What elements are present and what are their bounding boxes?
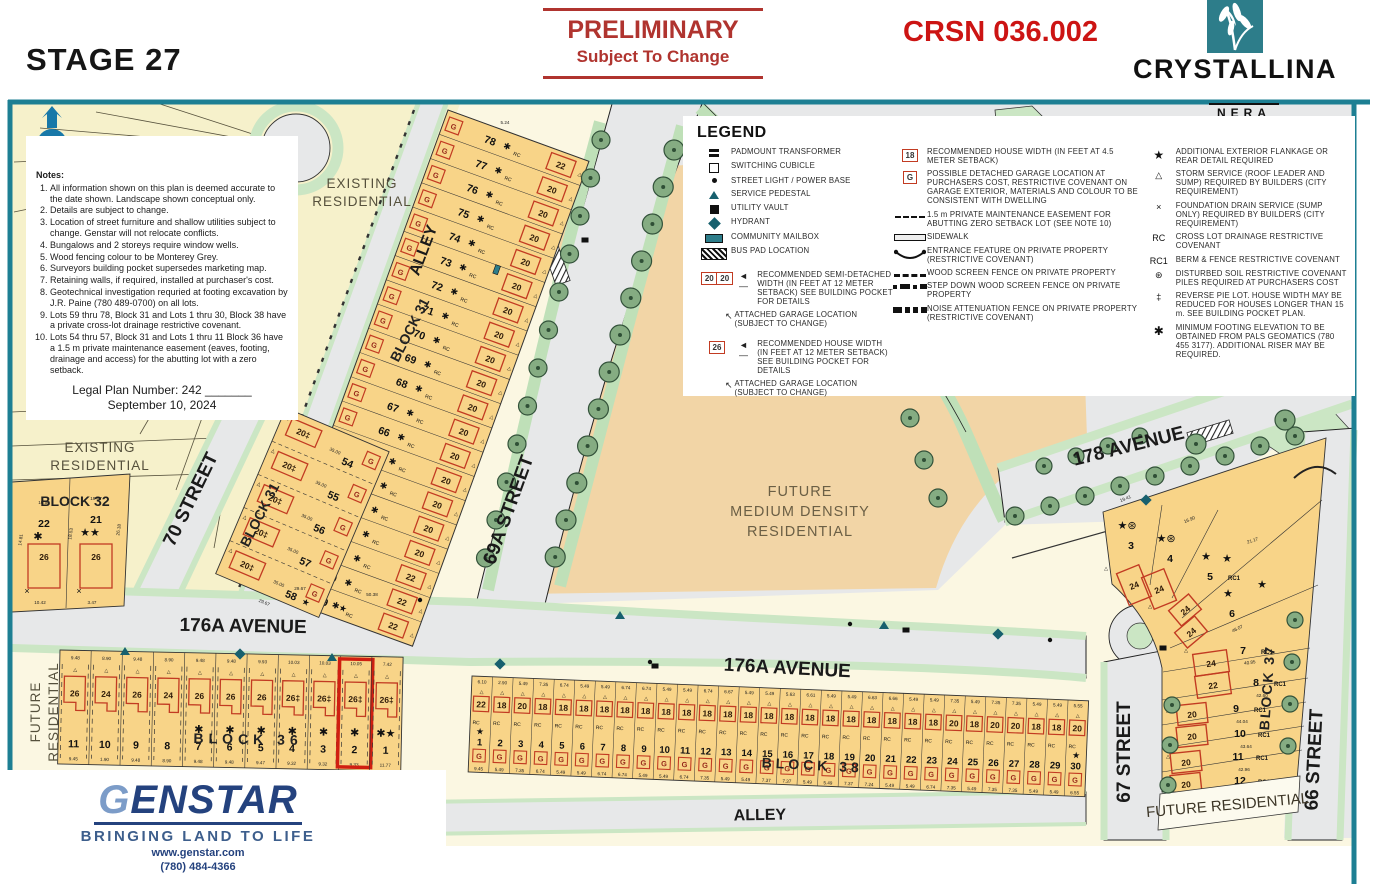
map-text: 5.24 — [501, 120, 510, 125]
legend-row: 18RECOMMENDED HOUSE WIDTH (IN FEET AT 4.… — [893, 148, 1142, 166]
map-text: 6.74 — [642, 686, 652, 691]
map-text: RC1 — [1258, 733, 1271, 739]
arrow-icon: ◄— — [739, 340, 755, 360]
map-text: 6.74 — [560, 683, 570, 688]
map-text: 20 — [949, 718, 959, 728]
map-text: RC — [596, 725, 604, 731]
map-text: 18 — [1052, 722, 1062, 732]
notes-heading: Notes: — [36, 170, 288, 181]
map-text: 20 — [865, 753, 876, 764]
map-text: 20 — [517, 701, 527, 711]
bus-pad-icon — [697, 247, 731, 260]
map-text: 5.49 — [1029, 788, 1039, 793]
map-text: G — [887, 768, 893, 777]
map-text: 24 — [101, 689, 111, 699]
map-text: △ — [623, 695, 627, 701]
map-text: 18 — [1031, 721, 1041, 731]
legend-row: RCCROSS LOT DRAINAGE RESTRICTIVE COVENAN… — [1142, 233, 1349, 251]
map-text: 3 — [1128, 540, 1134, 552]
transformer-icon — [903, 628, 910, 633]
map-text: 27 — [1008, 759, 1019, 770]
transformer-icon — [582, 238, 589, 243]
map-text: 6.55 — [1070, 790, 1080, 795]
map-text: 5.49 — [638, 773, 648, 778]
map-text: 5.63 — [786, 692, 796, 697]
map-text: 26 — [226, 691, 236, 701]
map-text: RC — [678, 728, 686, 734]
legend-title: LEGEND — [697, 124, 1349, 142]
map-text: △ — [229, 671, 233, 677]
map-text: 2 — [351, 744, 357, 756]
street-light-icon — [418, 598, 422, 602]
map-text: 6.74 — [926, 784, 936, 789]
map-text: 26‡ — [379, 695, 394, 705]
future-medium-label: MEDIUM DENSITY — [730, 504, 870, 520]
map-text: 44.04 — [1236, 719, 1248, 724]
map-text: ★★ — [80, 527, 100, 539]
disturbed-soil-icon: ⊛ — [1142, 270, 1176, 280]
map-text: △ — [665, 697, 669, 703]
map-text: △ — [292, 672, 296, 678]
map-text: 20 — [1011, 721, 1021, 731]
map-text: 4 — [1167, 553, 1173, 565]
map-text: 18 — [970, 719, 980, 729]
map-text: 18 — [661, 707, 671, 717]
map-text: 9.48 — [196, 658, 205, 663]
map-text: 6.74 — [618, 772, 628, 777]
map-text: △ — [323, 673, 327, 679]
legend-row: ✱MINIMUM FOOTING ELEVATION TO BE OBTAINE… — [1142, 324, 1349, 360]
map-text: 18 — [928, 717, 938, 727]
note-item: Wood fencing colour to be Monterey Grey. — [50, 252, 288, 263]
future-residential-label: RESIDENTIAL — [46, 662, 61, 762]
existing-residential-label: RESIDENTIAL — [50, 458, 150, 473]
map-text: 6.10 — [477, 679, 487, 684]
map-text: 43.64 — [1240, 744, 1252, 749]
legend-label: RECOMMENDED HOUSE WIDTH (IN FEET AT 4.5 … — [927, 148, 1142, 166]
map-text: △ — [136, 669, 140, 675]
street-light-icon — [697, 177, 731, 183]
map-text: 22 — [38, 518, 50, 530]
map-text: △ — [932, 707, 936, 713]
map-text: 20 — [1187, 709, 1198, 720]
reverse-pie-icon: ‡ — [1142, 292, 1176, 302]
map-text: 5.49 — [967, 786, 977, 791]
map-text: △ — [644, 696, 648, 702]
note-item: Lots 54 thru 57, Block 31 and Lots 1 thr… — [50, 332, 288, 375]
genstar-website: www.genstar.com — [42, 847, 354, 859]
map-text: 9.48 — [131, 758, 140, 763]
map-text: RC — [719, 730, 727, 736]
switching-cubicle-icon — [697, 162, 731, 173]
legend-label: COMMUNITY MAILBOX — [731, 233, 819, 242]
legend-row: △STORM SERVICE (ROOF LEADER AND SUMP) RE… — [1142, 170, 1349, 197]
map-text: G — [661, 759, 667, 768]
map-text: 7.35 — [1012, 701, 1022, 706]
map-text: RC — [555, 723, 563, 729]
transformer-icon — [1160, 646, 1167, 651]
map-text: 9.32 — [287, 761, 296, 766]
map-text: G — [681, 760, 687, 769]
box-18-icon: 18 — [893, 148, 927, 162]
map-text: 20 — [1187, 731, 1198, 742]
legend-label: WOOD SCREEN FENCE ON PRIVATE PROPERTY — [927, 269, 1116, 278]
map-text: 5.49 — [741, 777, 751, 782]
map-text: △ — [767, 701, 771, 707]
map-text: △ — [870, 705, 874, 711]
map-text: ★ — [1257, 579, 1267, 591]
map-text: 7.35 — [950, 698, 960, 703]
map-text: 6.74 — [680, 774, 690, 779]
map-text: G — [743, 762, 749, 771]
map-text: △ — [993, 710, 997, 716]
map-text: △ — [582, 693, 586, 699]
map-text: RC — [1048, 743, 1056, 749]
map-text: 13 — [721, 747, 732, 758]
map-text: △ — [1104, 566, 1108, 572]
map-text: 42.96 — [1238, 767, 1250, 772]
legend-label: STREET LIGHT / POWER BASE — [731, 177, 851, 186]
map-text: △ — [260, 671, 264, 677]
map-text: × — [24, 586, 29, 596]
legend-label: REVERSE PIE LOT. HOUSE WIDTH MAY BE REDU… — [1176, 292, 1349, 319]
plan-date: September 10, 2024 — [36, 398, 288, 412]
map-text: 20 — [1181, 757, 1192, 768]
map-text: ★⊛ — [1117, 520, 1136, 532]
notes-box: Notes: All information shown on this pla… — [26, 136, 298, 420]
map-text: △ — [1184, 648, 1188, 654]
map-text: G — [1010, 773, 1016, 782]
map-text: 9.48 — [227, 658, 236, 663]
map-text: 30 — [1070, 761, 1081, 772]
map-text: RC — [534, 723, 542, 729]
map-text: G — [723, 762, 729, 771]
map-text: △ — [726, 699, 730, 705]
map-text: 18 — [558, 703, 568, 713]
map-text: 5.49 — [1049, 789, 1059, 794]
legend-row: GPOSSIBLE DETACHED GARAGE LOCATION AT PU… — [893, 170, 1142, 206]
map-text: 11 — [1232, 751, 1243, 763]
padmount-transformer-icon — [697, 148, 731, 157]
map-text: G — [969, 772, 975, 781]
map-text: ★ — [476, 726, 484, 736]
map-text: △ — [104, 668, 108, 674]
legend-row: HYDRANT — [697, 218, 893, 228]
map-text: 14 — [741, 748, 753, 759]
map-text: 7.35 — [1008, 788, 1018, 793]
map-text: ★ — [1072, 750, 1080, 760]
arrow-icon: ◄— — [739, 271, 755, 291]
map-text: 18 — [538, 702, 548, 712]
map-text: 20 — [1181, 779, 1192, 790]
legend-row: UTILITY VAULT — [697, 204, 893, 214]
map-text: 10.42 — [34, 600, 46, 605]
map-text: 5.49 — [1053, 702, 1063, 707]
map-text: G — [538, 754, 544, 763]
map-text: ★ — [1222, 553, 1232, 565]
legend-row: ×FOUNDATION DRAIN SERVICE (SUMP ONLY) RE… — [1142, 202, 1349, 229]
legend-row: PADMOUNT TRANSFORMER — [697, 148, 893, 157]
map-text: 12 — [700, 746, 711, 757]
map-text: 10 — [659, 745, 670, 756]
map-text: G — [640, 758, 646, 767]
rc1-icon: RC1 — [1142, 256, 1176, 266]
map-text: 7.35 — [991, 700, 1001, 705]
map-text: △ — [891, 706, 895, 712]
map-text: ✱ — [33, 531, 42, 543]
map-text: 9.48 — [225, 759, 234, 764]
existing-residential-label: EXISTING — [326, 176, 397, 191]
map-text: 18 — [641, 706, 651, 716]
map-text: 18 — [908, 717, 918, 727]
map-text: △ — [500, 690, 504, 696]
map-text: 18 — [826, 713, 836, 723]
map-text: 6.61 — [806, 692, 816, 697]
street-light-icon — [1048, 638, 1052, 642]
map-text: △ — [1014, 711, 1018, 717]
map-text: 21 — [90, 514, 102, 526]
map-text: G — [579, 756, 585, 765]
genstar-logo: GENSTAR BRINGING LAND TO LIFE www.gensta… — [42, 772, 354, 873]
legend-row: BUS PAD LOCATION — [697, 247, 893, 260]
legend-row: ‡REVERSE PIE LOT. HOUSE WIDTH MAY BE RED… — [1142, 292, 1349, 319]
map-text: G — [702, 761, 708, 770]
map-text: 6.74 — [704, 688, 714, 693]
brand-name: CRYSTALLINA — [1105, 54, 1365, 85]
map-text: RC — [986, 741, 994, 747]
map-text: 18 — [846, 714, 856, 724]
map-text: G — [1072, 776, 1078, 785]
leaf-icon — [1207, 0, 1263, 53]
map-text: RC — [966, 740, 974, 746]
legend-row: STEP DOWN WOOD SCREEN FENCE ON PRIVATE P… — [893, 282, 1142, 300]
map-text: 20 — [990, 720, 1000, 730]
stage-title: STAGE 27 — [26, 42, 182, 78]
avenue-176a-label: 176A AVENUE — [179, 615, 306, 638]
footing-asterisk-icon: ✱ — [1142, 324, 1176, 337]
map-text: △ — [788, 702, 792, 708]
legend-label: 1.5 m PRIVATE MAINTENANCE EASEMENT FOR A… — [927, 211, 1142, 229]
legend-row: COMMUNITY MAILBOX — [697, 233, 893, 243]
map-text: 29.67 — [294, 586, 306, 591]
map-text: 26‡ — [348, 694, 363, 704]
wood-fence-icon — [893, 269, 927, 277]
notes-list: All information shown on this plan is de… — [36, 183, 288, 376]
block-36-label: BLOCK 36 — [193, 730, 302, 748]
alley-label: ALLEY — [734, 807, 787, 825]
legend-row: ENTRANCE FEATURE ON PRIVATE PROPERTY (RE… — [893, 247, 1142, 265]
map-text: 11 — [68, 738, 80, 750]
map-text: 28 — [1029, 759, 1040, 770]
map-text: 18 — [867, 715, 877, 725]
map-text: 2.90 — [498, 680, 508, 685]
foundation-x-icon: × — [1142, 202, 1176, 212]
map-text: △ — [1166, 754, 1170, 760]
map-text: 6.74 — [597, 771, 607, 776]
map-text: RC — [945, 739, 953, 745]
map-text: △ — [747, 700, 751, 706]
map-text: 5.49 — [885, 783, 895, 788]
preliminary-title: PRELIMINARY — [543, 16, 763, 45]
map-text: G — [908, 769, 914, 778]
map-text: 9.48 — [71, 655, 80, 660]
legend-label: ADDITIONAL EXTERIOR FLANKAGE OR REAR DET… — [1176, 148, 1349, 166]
map-text: 18 — [805, 712, 815, 722]
map-text: 6.63 — [868, 695, 878, 700]
map-text: △ — [354, 673, 358, 679]
map-text: 24 — [1206, 658, 1217, 669]
map-text: G — [866, 767, 872, 776]
map-text: 20 — [1072, 723, 1082, 733]
map-text: ✱★ — [376, 728, 395, 740]
map-text: G — [1051, 775, 1057, 784]
legend-label: BERM & FENCE RESTRICTIVE COVENANT — [1176, 256, 1340, 265]
map-text: 10.05 — [350, 661, 362, 666]
map-text: 6.74 — [621, 685, 631, 690]
map-text: 8.90 — [164, 657, 173, 662]
map-text: RC — [740, 731, 748, 737]
future-residential-label: FUTURE — [28, 682, 43, 743]
map-text: 6 — [1229, 608, 1235, 620]
map-text: G — [496, 753, 502, 762]
map-text: 10 — [99, 739, 111, 751]
map-text: 8.90 — [102, 656, 111, 661]
map-text: 1.90 — [100, 757, 109, 762]
map-text: RC — [760, 732, 768, 738]
map-text: RC — [904, 737, 912, 743]
map-text: 18 — [497, 700, 507, 710]
house-width-symbol: 26 — [697, 340, 737, 354]
preliminary-stamp: PRELIMINARY Subject To Change — [543, 8, 763, 79]
legend-label: CROSS LOT DRAINAGE RESTRICTIVE COVENANT — [1176, 233, 1349, 251]
map-text: 9.48 — [133, 657, 142, 662]
map-text: G — [928, 770, 934, 779]
map-text: 11.77 — [380, 763, 392, 768]
future-medium-label: FUTURE — [768, 484, 833, 500]
legend-row: RC1BERM & FENCE RESTRICTIVE COVENANT — [1142, 256, 1349, 266]
legend-label: BUS PAD LOCATION — [731, 247, 809, 256]
genstar-phone: (780) 484-4366 — [42, 861, 354, 873]
easement-dash-icon — [893, 211, 927, 218]
note-item: Surveyors building pocket supersedes mar… — [50, 263, 288, 274]
map-text: 5.49 — [580, 683, 590, 688]
map-text: 26 — [91, 552, 101, 562]
map-text: RC — [781, 732, 789, 738]
legend-composite: 26◄—RECOMMENDED HOUSE WIDTH (IN FEET AT … — [697, 340, 893, 403]
map-text: 5.49 — [803, 779, 813, 784]
utility-vault-icon — [697, 204, 731, 214]
map-text: 5.49 — [721, 776, 731, 781]
map-text: 22 — [1208, 680, 1219, 691]
map-text: RC — [657, 727, 665, 733]
legend-row: ★ADDITIONAL EXTERIOR FLANKAGE OR REAR DE… — [1142, 148, 1349, 166]
map-text: 26‡ — [286, 693, 301, 703]
map-text: 3 — [518, 739, 524, 750]
map-text: △ — [911, 707, 915, 713]
map-text: RC — [493, 721, 501, 727]
map-text: 10 — [1234, 728, 1246, 740]
noise-fence-icon — [893, 305, 927, 314]
brand-logo: CRYSTALLINA NERA — [1105, 0, 1365, 122]
map-text: 23 — [926, 755, 937, 766]
map-text: 26 — [132, 690, 142, 700]
street-67-label: 67 STREET — [1114, 701, 1135, 803]
map-text: 7.35 — [700, 775, 710, 780]
map-text: 5.49 — [1032, 702, 1042, 707]
street-light-icon — [848, 622, 852, 626]
map-text: 8.90 — [162, 758, 171, 763]
legend-label: SIDEWALK — [927, 233, 969, 242]
map-text: 10.03 — [288, 660, 300, 665]
map-text: 7.35 — [947, 785, 957, 790]
entrance-feature-icon — [893, 247, 927, 262]
plan-code: CRSN 036.002 — [903, 16, 1098, 49]
map-text: △ — [1055, 712, 1059, 718]
map-text: 5.49 — [659, 774, 669, 779]
legal-plan-number: Legal Plan Number: 242 _______ — [36, 383, 288, 397]
map-text: 5.49 — [930, 697, 940, 702]
note-item: Bungalows and 2 storeys require window w… — [50, 240, 288, 251]
note-item: Details are subject to change. — [50, 205, 288, 216]
map-text: G — [949, 771, 955, 780]
map-text: △ — [198, 670, 202, 676]
map-text: 22 — [906, 754, 917, 765]
map-text: ★ — [1223, 588, 1233, 600]
service-pedestal-icon — [697, 190, 731, 199]
map-text: 5.49 — [519, 681, 529, 686]
map-text: G — [476, 752, 482, 761]
map-text: 18 — [600, 704, 610, 714]
map-text: RC — [842, 735, 850, 741]
rc-icon: RC — [1142, 233, 1176, 243]
map-text: △ — [73, 667, 77, 673]
map-text: RC — [698, 729, 706, 735]
map-text: ★⊛ — [1156, 533, 1175, 545]
map-text: G — [620, 758, 626, 767]
map-text: RC1 — [1274, 682, 1287, 688]
map-text: 7 — [600, 742, 606, 753]
legend-label: POSSIBLE DETACHED GARAGE LOCATION AT PUR… — [927, 170, 1142, 206]
map-text: G — [990, 772, 996, 781]
map-text: 5.49 — [847, 694, 857, 699]
map-text: 5.49 — [971, 699, 981, 704]
block-32-label: BLOCK 32 — [40, 493, 109, 509]
map-text: G — [517, 753, 523, 762]
map-text: 18 — [620, 705, 630, 715]
legend-composite: 2020◄—RECOMMENDED SEMI-DETACHED WIDTH (I… — [697, 271, 893, 334]
map-text: △ — [603, 694, 607, 700]
map-text: G — [1031, 774, 1037, 783]
legend-label: DISTURBED SOIL RESTRICTIVE COVENANT PILE… — [1176, 270, 1349, 288]
map-text: RC — [1027, 742, 1035, 748]
map-text: RC1 — [1256, 756, 1269, 762]
map-text: △ — [706, 698, 710, 704]
legend-row: NOISE ATTENUATION FENCE ON PRIVATE PROPE… — [893, 305, 1142, 323]
map-text: G — [558, 755, 564, 764]
note-item: Geotechnical investigation requried at f… — [50, 287, 288, 309]
map-text: △ — [385, 674, 389, 680]
legend-label: NOISE ATTENUATION FENCE ON PRIVATE PROPE… — [927, 305, 1142, 323]
map-text: 7.35 — [539, 682, 549, 687]
note-item: Lots 59 thru 78, Block 31 and Lots 1 thr… — [50, 310, 288, 332]
map-text: 9.45 — [474, 766, 484, 771]
map-text: 25 — [967, 757, 979, 768]
map-text: RC — [863, 736, 871, 742]
map-text: 18 — [579, 703, 589, 713]
map-text: 6.74 — [536, 769, 546, 774]
map-text: 26 — [70, 688, 80, 698]
legend-label: MINIMUM FOOTING ELEVATION TO BE OBTAINED… — [1176, 324, 1349, 360]
